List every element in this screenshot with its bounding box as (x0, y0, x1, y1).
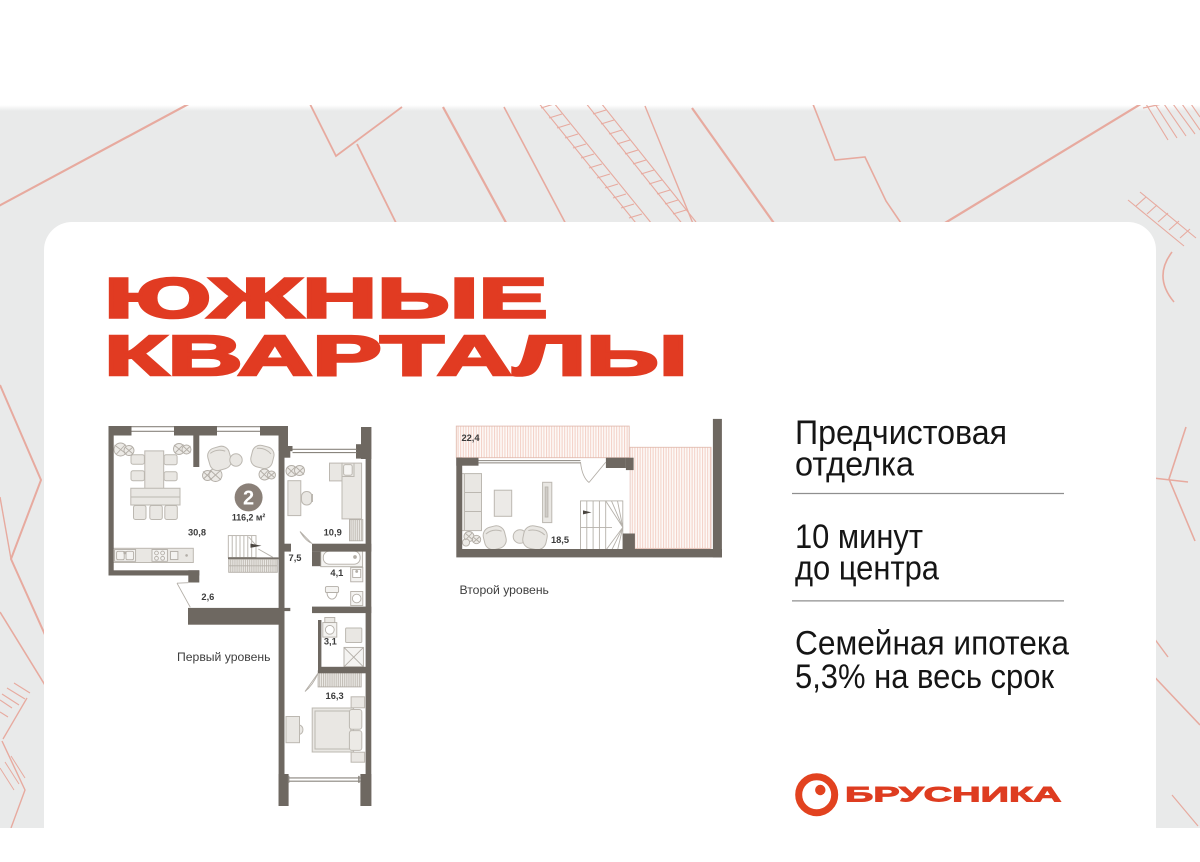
svg-text:2: 2 (243, 488, 254, 510)
svg-text:ЮЖНЫЕ: ЮЖНЫЕ (104, 267, 547, 331)
svg-text:Семейная ипотека: Семейная ипотека (795, 625, 1069, 663)
svg-text:10,9: 10,9 (324, 527, 342, 537)
svg-text:18,5: 18,5 (551, 535, 569, 545)
svg-text:116,2 м²: 116,2 м² (232, 512, 266, 523)
svg-text:22,4: 22,4 (461, 433, 480, 443)
svg-text:3,1: 3,1 (324, 636, 337, 646)
svg-text:КВАРТАЛЫ: КВАРТАЛЫ (104, 324, 687, 388)
svg-text:4,1: 4,1 (330, 568, 343, 578)
svg-text:отделка: отделка (795, 445, 914, 483)
svg-text:Второй уровень: Второй уровень (460, 583, 549, 597)
svg-text:2,6: 2,6 (201, 592, 214, 602)
svg-text:Первый уровень: Первый уровень (177, 650, 270, 664)
svg-text:16,3: 16,3 (326, 691, 344, 701)
svg-text:30,8: 30,8 (188, 527, 206, 537)
svg-text:5,3% на весь срок: 5,3% на весь срок (795, 658, 1055, 696)
svg-text:до центра: до центра (795, 549, 939, 587)
svg-text:БРУСНИКА: БРУСНИКА (845, 783, 1062, 807)
svg-text:7,5: 7,5 (289, 553, 302, 563)
